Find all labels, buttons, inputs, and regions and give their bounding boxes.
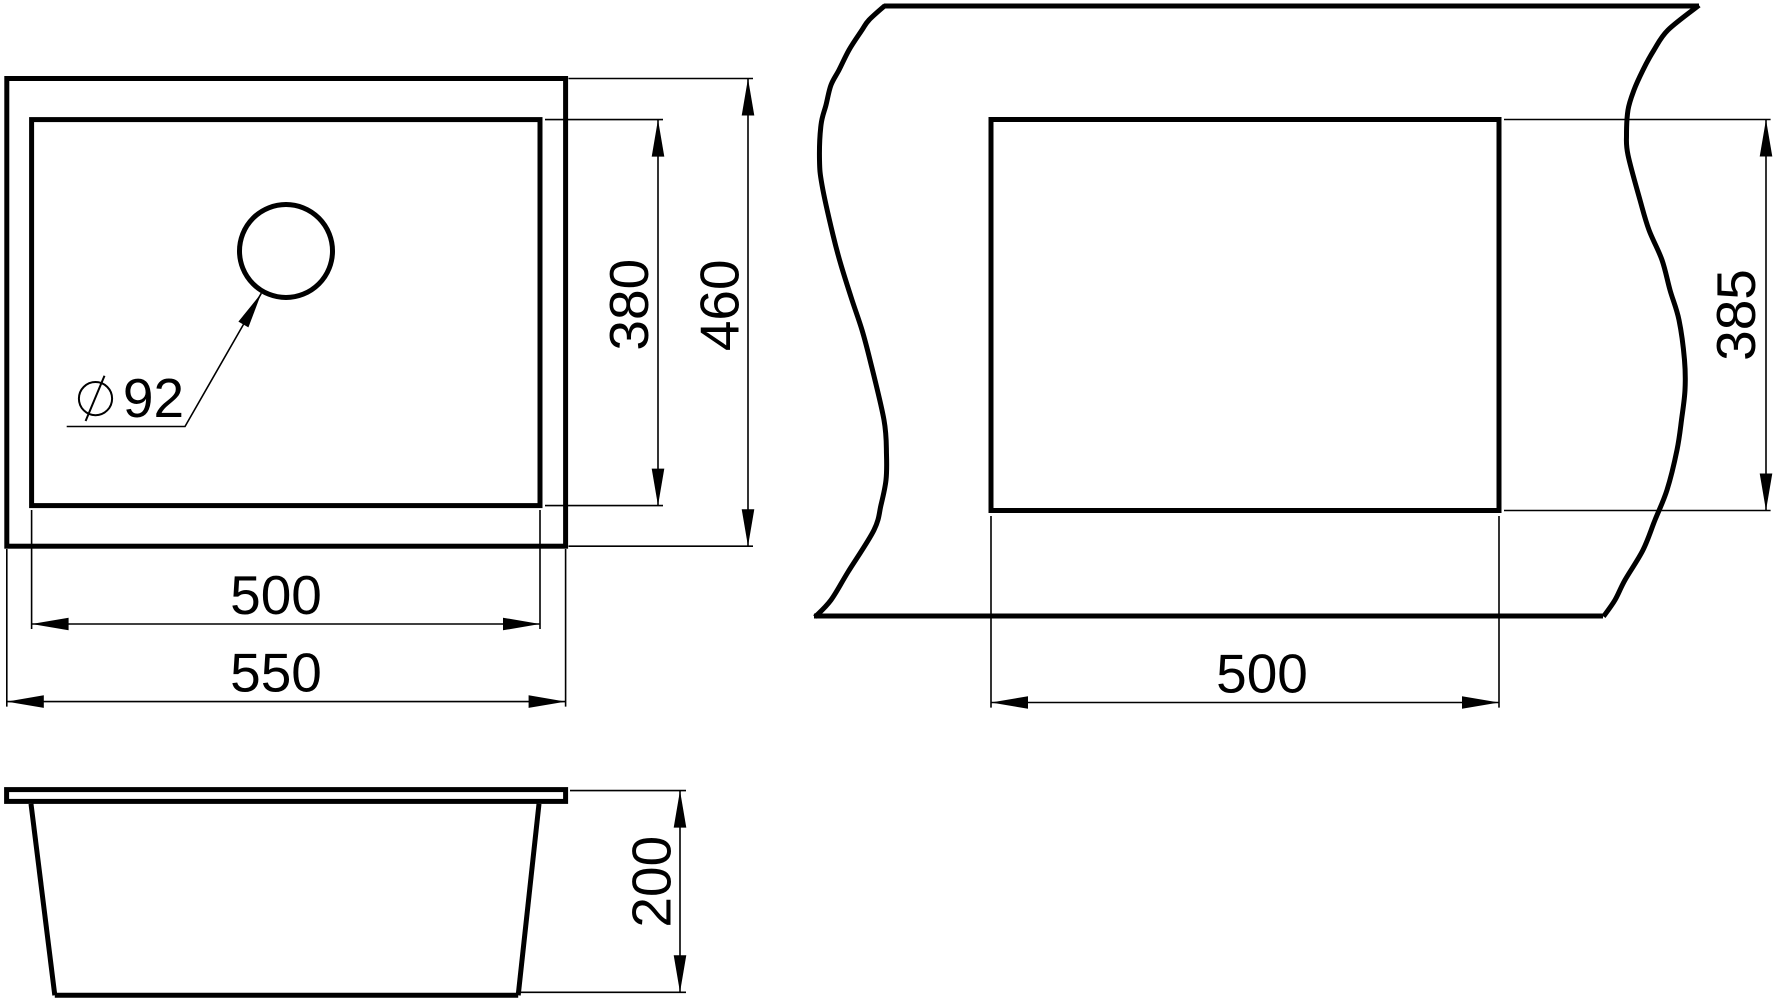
svg-text:380: 380: [598, 259, 660, 351]
svg-text:200: 200: [620, 836, 682, 928]
svg-text:460: 460: [689, 259, 751, 351]
svg-text:500: 500: [230, 564, 322, 626]
svg-text:92: 92: [123, 367, 184, 429]
svg-text:500: 500: [1216, 643, 1308, 705]
svg-text:550: 550: [230, 642, 322, 704]
svg-text:385: 385: [1705, 269, 1767, 361]
